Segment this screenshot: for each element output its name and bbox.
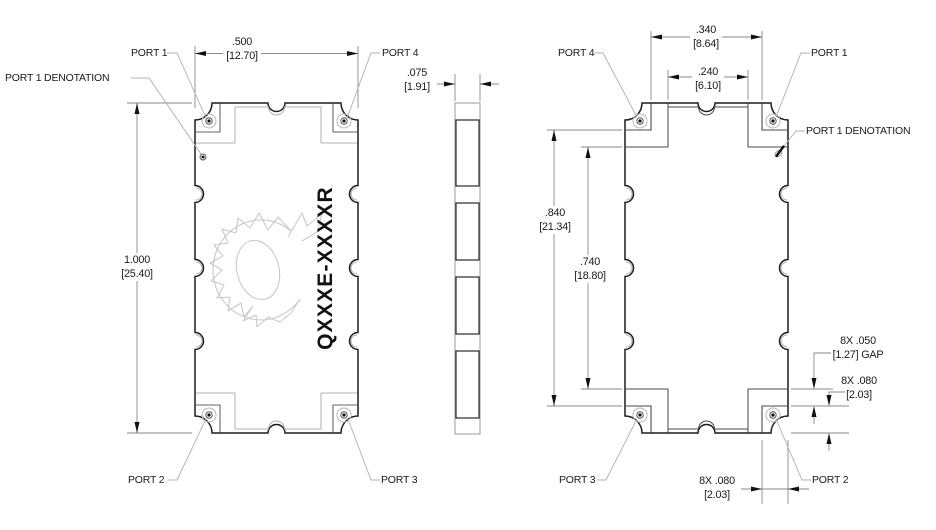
port3-label-top-view: PORT 3: [381, 475, 417, 486]
mechanical-drawing-page: PORT 1 PORT 4 PORT 1 DENOTATION PORT 2 P…: [0, 0, 936, 530]
port1-denotation-mark-bottom: [774, 147, 784, 158]
bottom-view-outline: [625, 103, 788, 433]
dim-pad-inner-height: .740[18.80]: [571, 255, 609, 283]
bottom-view-port-screws: [633, 114, 780, 422]
dim-pad-height: 8X .080[2.03]: [841, 374, 877, 402]
dim-body-height: 1.000[25.40]: [118, 253, 156, 281]
port1-label-bottom-view: PORT 1: [811, 48, 847, 59]
port1-denotation-mark: [200, 154, 206, 160]
port2-label-bottom-view: PORT 2: [812, 475, 848, 486]
dim-pad-width: 8X .080[2.03]: [699, 474, 735, 502]
dim-body-width: .500[12.70]: [223, 35, 261, 63]
dim-pad-gap: 8X .050[1.27] GAP: [833, 334, 884, 362]
dim-pad-outer-span: .340[8.64]: [690, 23, 722, 51]
dim-pad-outer-height: .840[21.34]: [536, 206, 574, 234]
port4-label-bottom-view: PORT 4: [558, 48, 594, 59]
bottom-view: [625, 103, 788, 433]
leader-lines: [131, 53, 811, 480]
dimension-lines: [137, 37, 845, 489]
dim-pad-inner-span: .240[6.10]: [692, 65, 724, 93]
bottom-view-inner-contour: [626, 104, 787, 433]
port2-label-top-view: PORT 2: [128, 475, 164, 486]
dim-thickness: .075[1.91]: [404, 66, 430, 94]
side-view-segments: [456, 120, 479, 418]
port1-label-top-view: PORT 1: [131, 48, 167, 59]
side-view: [455, 103, 480, 434]
port4-label-top-view: PORT 4: [382, 48, 418, 59]
dragon-logo: [210, 213, 322, 327]
bottom-view-hidden-arcs: [626, 188, 787, 347]
bottom-view-corner-pads: [626, 104, 787, 433]
port1-denotation-label-bottom-view: PORT 1 DENOTATION: [806, 126, 910, 137]
port3-label-bottom-view: PORT 3: [559, 475, 595, 486]
port1-denotation-label-top-view: PORT 1 DENOTATION: [5, 73, 109, 84]
part-marking-text: QXXXE-XXXXR: [313, 183, 339, 353]
